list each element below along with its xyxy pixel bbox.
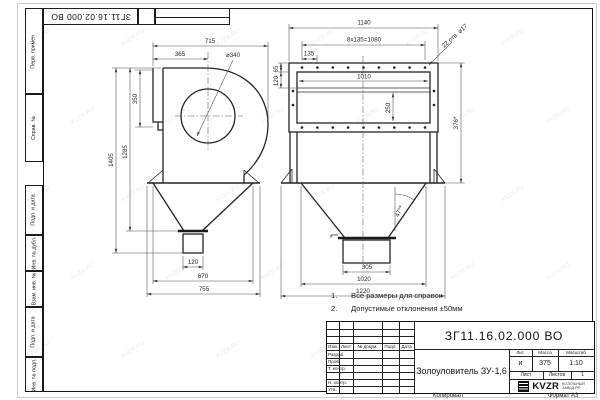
inlet-lip-lines [297, 88, 430, 92]
drawing-sheet: KVZR.RUKVZR.RUKVZR.RUKVZR.RUKVZR.RUKVZR.… [0, 0, 600, 400]
tb-doc-number: ЗГ11.16.02.000 ВО [414, 322, 594, 349]
dim-bolt-spacing: 8x135=1080 [347, 37, 382, 44]
tb-litera-label: Лит. [509, 349, 532, 356]
kvzr-logo-icon [518, 381, 529, 392]
left-view-dimensions: 715 365 ⌀340 350 1405 1285 120 670 755 [108, 38, 268, 297]
hopper-slopes [153, 183, 253, 231]
dia-340: ⌀340 [226, 52, 241, 59]
format-label: Формат А3 [548, 393, 578, 399]
tb-row-nkontr: Н. контр. [328, 379, 353, 386]
tb-sheets-value: 1 [571, 371, 594, 379]
note-1-text: Все размеры для справок [351, 290, 442, 303]
tb-mass-value: 375 [532, 356, 558, 371]
left-view-outline [147, 68, 268, 253]
dim-376: 376* [453, 116, 460, 129]
tb-header-podp: Подп. [382, 343, 399, 350]
tb-line [327, 336, 414, 337]
outlet-box [183, 234, 203, 253]
tb-scale-value: 1:10 [558, 356, 594, 371]
angle-arc [395, 194, 414, 200]
outlet-box [343, 240, 390, 263]
dim-670: 670 [198, 273, 209, 280]
dim-120: 120 [188, 259, 199, 266]
dim-755: 755 [199, 286, 210, 293]
note-1: 1. Все размеры для справок [331, 290, 463, 303]
tb-logo-cell: KVZR КОТЕЛЬНЫЙ ЗАВОД.РФ [509, 379, 594, 393]
dim-250: 250 [385, 102, 392, 113]
left-view: 715 365 ⌀340 350 1405 1285 120 670 755 [108, 38, 268, 297]
dim-1405: 1405 [108, 153, 115, 167]
tb-sheet-label: Лист [509, 371, 543, 379]
tb-row-prov: Пров. [328, 358, 353, 365]
tb-scale-label: Масштаб [558, 349, 594, 356]
dim-1140: 1140 [357, 20, 371, 27]
inlet-flange-step [158, 122, 163, 130]
hopper-slopes [301, 183, 426, 238]
notes: 1. Все размеры для справок 2. Допустимые… [331, 290, 463, 315]
outlet-flange-hook [331, 235, 338, 238]
note-2-text: Допустимые отклонения ±50мм [351, 303, 463, 316]
volute-outline [163, 68, 268, 183]
note-1-number: 1. [331, 290, 351, 303]
tb-row-utv: Утв. [328, 386, 353, 393]
tb-mass-label: Масса [532, 349, 558, 356]
copied-label: Копировал [418, 393, 478, 399]
dim-305: 305 [362, 264, 373, 271]
dim-1010: 1010 [357, 74, 371, 81]
leader-holes-text: 22 отв. ⌀17 [441, 22, 470, 49]
dim-1020: 1020 [357, 276, 371, 283]
inlet-flange [153, 68, 163, 122]
tb-row-razrab: Разраб. [328, 350, 353, 358]
front-view: 1140 8x135=1080 135 65 120 1010 250 376*… [273, 20, 470, 300]
tb-line [327, 329, 414, 330]
tb-sheets-label: Листов [543, 371, 571, 379]
dim-120: 120 [273, 75, 280, 86]
kvzr-logo-text: KVZR [532, 381, 559, 392]
tb-header-data: Дата [399, 343, 414, 350]
dim-715: 715 [205, 38, 216, 45]
tb-header-list: Лист [339, 343, 353, 350]
dim-1285: 1285 [122, 145, 129, 159]
tb-header-izm: Изм. [327, 343, 339, 350]
tb-product-name: Золоуловитель ЗУ-1,6 [414, 349, 509, 393]
dim-135: 135 [304, 51, 315, 58]
dim-65: 65 [273, 65, 280, 72]
kvzr-logo-subtitle: КОТЕЛЬНЫЙ ЗАВОД.РФ [562, 382, 585, 390]
title-block: Изм. Лист № докум. Подп. Дата Разраб. Пр… [326, 321, 595, 394]
tb-row-blank [328, 372, 353, 379]
dim-350: 350 [132, 93, 139, 104]
dim-365: 365 [175, 51, 186, 58]
body-side-walls [290, 132, 437, 183]
tb-row-tkontr: Т. контр. [328, 365, 353, 372]
kvzr-logo-subtitle-line2: ЗАВОД.РФ [562, 386, 585, 390]
front-view-dimensions: 1140 8x135=1080 135 65 120 1010 250 376*… [273, 20, 470, 300]
note-2-number: 2. [331, 303, 351, 316]
note-2: 2. Допустимые отклонения ±50мм [331, 303, 463, 316]
tb-header-docnum: № докум. [353, 343, 382, 350]
gussets [148, 170, 259, 183]
tb-litera-value: и [509, 356, 532, 371]
